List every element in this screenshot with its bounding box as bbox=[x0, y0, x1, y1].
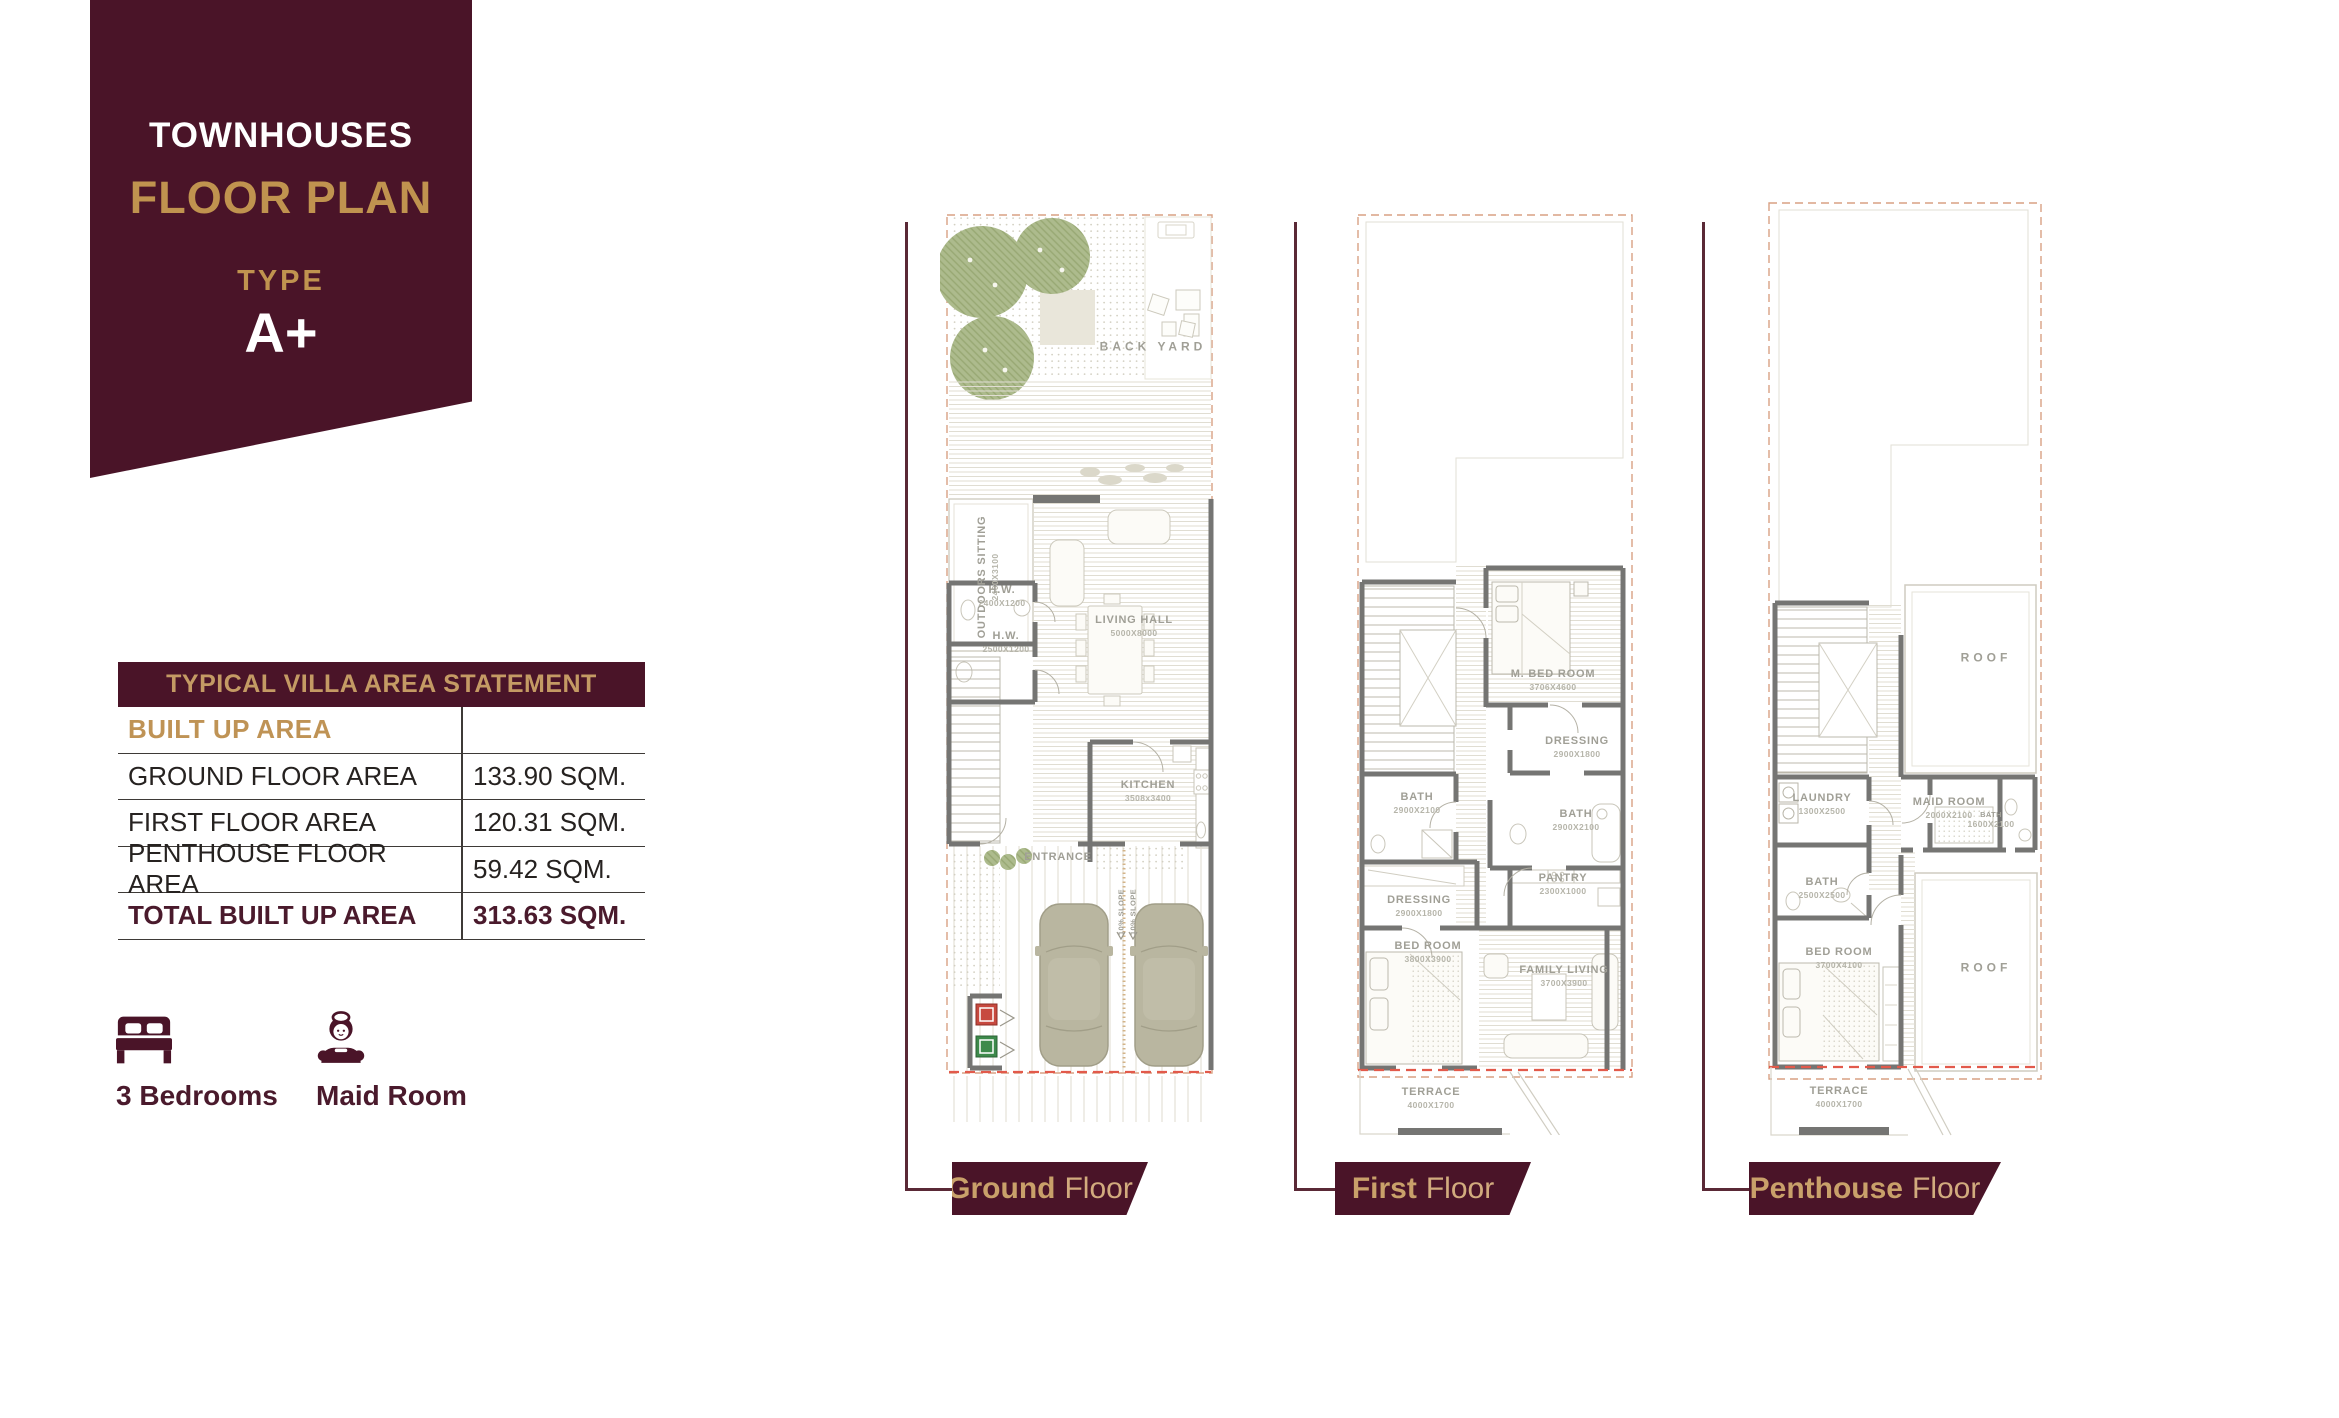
room-label: BATH1600X2100 bbox=[1967, 810, 2014, 830]
sheet-title: TOWNHOUSES bbox=[90, 116, 472, 156]
slope-label: 10% SLOPE bbox=[1116, 889, 1125, 935]
room-label: OUTDOORS SITTING2400X3100 bbox=[976, 516, 1000, 639]
total-label: TOTAL BUILT UP AREA bbox=[118, 900, 461, 931]
row-label: FIRST FLOOR AREA bbox=[118, 807, 461, 838]
maid-icon bbox=[316, 1008, 366, 1066]
room-label: LIVING HALL5000X8000 bbox=[1095, 614, 1173, 638]
built-up-area-header: BUILT UP AREA bbox=[118, 714, 461, 745]
bed-icon bbox=[116, 1014, 172, 1066]
room-label: PANTRY2300X1000 bbox=[1539, 872, 1588, 896]
type-label: TYPE bbox=[90, 265, 472, 298]
room-label: ROOF bbox=[1961, 651, 2012, 666]
row-value: 59.42 SQM. bbox=[461, 854, 645, 885]
banner-bold-word: Penthouse bbox=[1750, 1172, 1903, 1206]
room-label: ENTRANCE bbox=[1024, 851, 1092, 865]
area-table-body: BUILT UP AREA GROUND FLOOR AREA 133.90 S… bbox=[118, 707, 645, 940]
room-label: BED ROOM3700X4100 bbox=[1806, 946, 1873, 970]
room-label: M. BED ROOM3706X4600 bbox=[1511, 668, 1596, 692]
bedrooms-label: 3 Bedrooms bbox=[116, 1080, 278, 1112]
table-column-divider bbox=[461, 707, 463, 940]
feature-bedrooms: 3 Bedrooms bbox=[116, 1014, 278, 1112]
table-total-row: TOTAL BUILT UP AREA 313.63 SQM. bbox=[118, 893, 645, 940]
first-floor-bracket bbox=[1294, 222, 1338, 1191]
area-statement-table: TYPICAL VILLA AREA STATEMENT BUILT UP AR… bbox=[118, 662, 645, 940]
type-value: A+ bbox=[90, 300, 472, 365]
penthouse-floor-plan-drawing bbox=[1763, 195, 2048, 1140]
room-label: ROOF bbox=[1961, 961, 2012, 976]
room-label: BATH2900X2100 bbox=[1393, 791, 1440, 815]
maid-room-label: Maid Room bbox=[316, 1080, 467, 1112]
sheet-subtitle: FLOOR PLAN bbox=[90, 172, 472, 224]
floor-plan-sheet: TOWNHOUSES FLOOR PLAN TYPE A+ TYPICAL VI… bbox=[0, 0, 2339, 1418]
first-floor-banner: First Floor bbox=[1335, 1162, 1531, 1215]
area-table-title: TYPICAL VILLA AREA STATEMENT bbox=[118, 662, 645, 707]
room-label: DRESSING2900X1800 bbox=[1545, 735, 1609, 759]
table-row: PENTHOUSE FLOOR AREA 59.42 SQM. bbox=[118, 847, 645, 894]
room-label: H.W.2400X1200 bbox=[978, 584, 1025, 608]
room-label: LAUNDRY1300X2500 bbox=[1793, 792, 1852, 816]
banner-bold-word: First bbox=[1352, 1172, 1417, 1206]
row-label: PENTHOUSE FLOOR AREA bbox=[118, 838, 461, 900]
total-value: 313.63 SQM. bbox=[461, 900, 645, 931]
room-label: DRESSING2900X1800 bbox=[1387, 894, 1451, 918]
table-row: GROUND FLOOR AREA 133.90 SQM. bbox=[118, 754, 645, 801]
room-label: FAMILY LIVING3700X3900 bbox=[1519, 964, 1608, 988]
penthouse-floor-banner: Penthouse Floor bbox=[1749, 1162, 2001, 1215]
title-ribbon: TOWNHOUSES FLOOR PLAN TYPE A+ bbox=[90, 0, 472, 478]
room-label: TERRACE4000X1700 bbox=[1402, 1086, 1461, 1110]
table-row: BUILT UP AREA bbox=[118, 707, 645, 754]
penthouse-floor-bracket bbox=[1702, 222, 1752, 1191]
banner-regular-word: Floor bbox=[1064, 1172, 1132, 1206]
banner-bold-word: Ground bbox=[947, 1172, 1055, 1206]
room-label: BED ROOM3800X3900 bbox=[1395, 940, 1462, 964]
room-label: BATH2900X2100 bbox=[1552, 808, 1599, 832]
room-label: KITCHEN3508x3400 bbox=[1121, 779, 1176, 803]
first-floor-plan-drawing bbox=[1352, 210, 1642, 1135]
feature-maid-room: Maid Room bbox=[316, 1008, 467, 1112]
banner-regular-word: Floor bbox=[1426, 1172, 1494, 1206]
banner-regular-word: Floor bbox=[1912, 1172, 1980, 1206]
row-value: 133.90 SQM. bbox=[461, 761, 645, 792]
row-label: GROUND FLOOR AREA bbox=[118, 761, 461, 792]
room-label: TERRACE4000X1700 bbox=[1810, 1085, 1869, 1109]
row-value: 120.31 SQM. bbox=[461, 807, 645, 838]
slope-label: 10% SLOPE bbox=[1128, 889, 1137, 935]
room-label: BACK YARD bbox=[1100, 340, 1207, 355]
ground-floor-banner: Ground Floor bbox=[952, 1162, 1148, 1215]
room-label: BATH2500X2500 bbox=[1798, 876, 1845, 900]
room-label: H.W.2500X1200 bbox=[982, 630, 1029, 654]
